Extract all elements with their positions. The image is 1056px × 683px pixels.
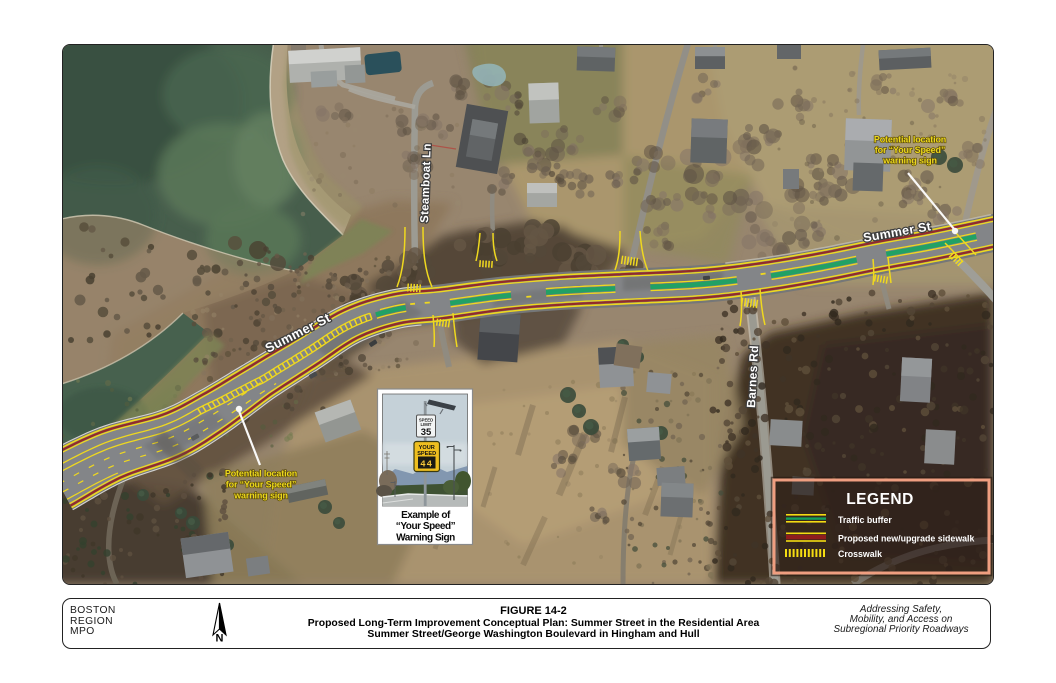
- svg-text:warning sign: warning sign: [882, 155, 937, 165]
- svg-text:Proposed new/upgrade sidewalk: Proposed new/upgrade sidewalk: [838, 534, 974, 544]
- svg-text:44: 44: [420, 459, 433, 469]
- svg-text:Example of: Example of: [401, 510, 451, 521]
- svg-text:35: 35: [421, 427, 432, 438]
- svg-text:Crosswalk: Crosswalk: [838, 549, 882, 559]
- svg-text:LEGEND: LEGEND: [846, 491, 914, 508]
- svg-text:for “Your Speed”: for “Your Speed”: [226, 480, 296, 490]
- svg-text:Traffic buffer: Traffic buffer: [838, 515, 892, 525]
- svg-text:Warning Sign: Warning Sign: [396, 532, 455, 543]
- svg-text:Potential location: Potential location: [874, 135, 946, 145]
- svg-text:for “Your Speed”: for “Your Speed”: [875, 145, 945, 155]
- svg-text:Potential location: Potential location: [225, 469, 297, 479]
- svg-text:LIMIT: LIMIT: [421, 422, 432, 427]
- svg-text:“Your Speed”: “Your Speed”: [396, 521, 456, 532]
- svg-text:SPEED: SPEED: [417, 451, 436, 457]
- svg-text:warning sign: warning sign: [233, 490, 288, 500]
